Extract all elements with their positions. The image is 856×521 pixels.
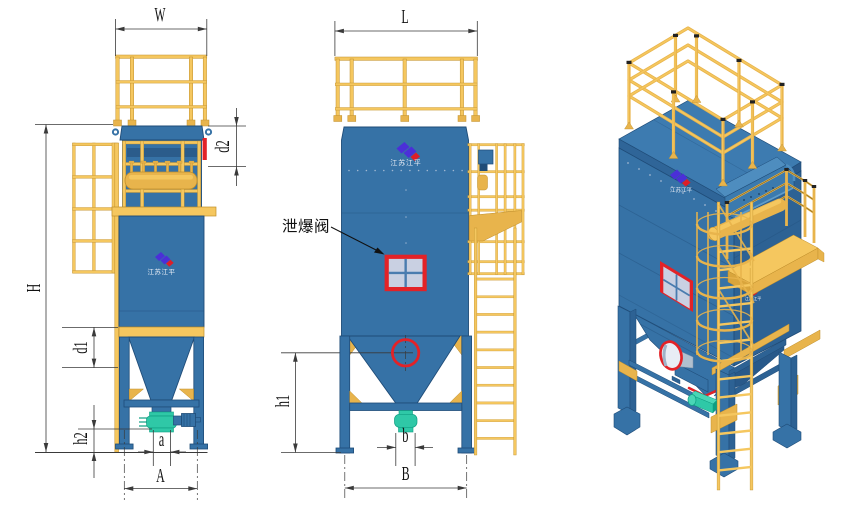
svg-text:b: b bbox=[402, 424, 408, 447]
svg-text:泄爆阀: 泄爆阀 bbox=[282, 217, 330, 236]
svg-text:d2: d2 bbox=[211, 140, 234, 152]
svg-text:H: H bbox=[22, 284, 45, 293]
svg-text:W: W bbox=[155, 3, 166, 26]
svg-text:d1: d1 bbox=[69, 341, 92, 353]
svg-text:L: L bbox=[401, 5, 408, 28]
svg-text:江苏江平: 江苏江平 bbox=[148, 267, 176, 276]
svg-text:A: A bbox=[156, 464, 165, 487]
svg-text:h1: h1 bbox=[271, 395, 294, 407]
svg-text:江苏江平: 江苏江平 bbox=[390, 158, 421, 167]
svg-text:h2: h2 bbox=[69, 432, 92, 444]
svg-text:a: a bbox=[159, 428, 165, 451]
svg-text:江苏江平: 江苏江平 bbox=[670, 186, 693, 194]
svg-text:B: B bbox=[402, 462, 410, 485]
